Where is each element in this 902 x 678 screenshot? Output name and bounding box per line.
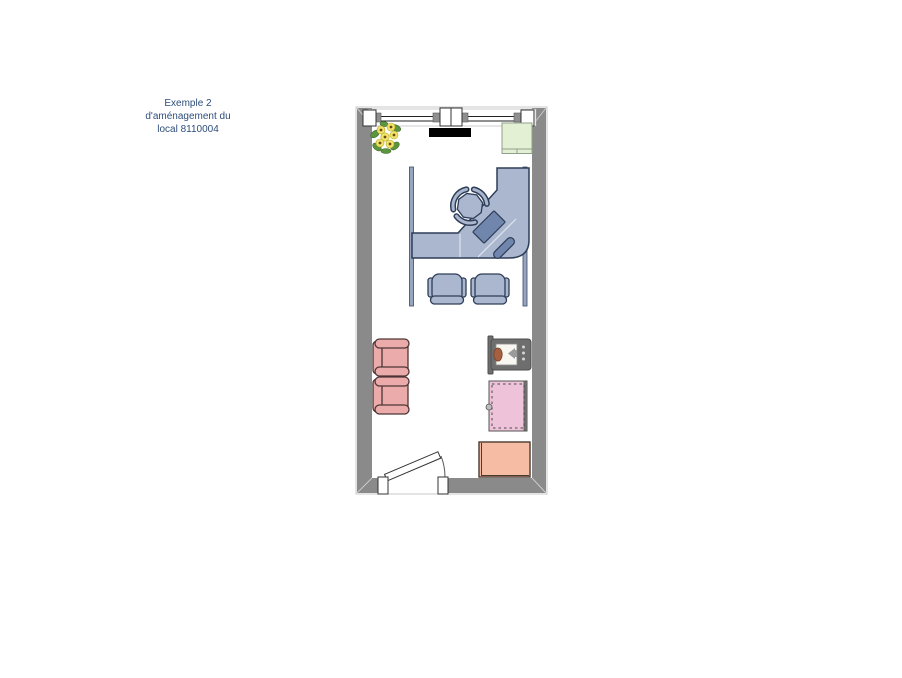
armchair-1-arm-bottom — [375, 367, 409, 376]
door-jamb-left — [378, 477, 388, 494]
floor-plan — [0, 0, 902, 678]
window-post-left — [363, 110, 376, 126]
window-connector-2 — [433, 113, 440, 122]
side-table-top — [479, 442, 530, 477]
floor-plan-page: Exemple 2 d'aménagement du local 8110004 — [0, 0, 902, 678]
visitor-chair-2-back — [474, 296, 507, 304]
pin-board-surface — [489, 381, 527, 431]
cabinet-door-left — [502, 149, 517, 154]
cabinet-body — [502, 123, 532, 149]
armchair-1-arm-top — [375, 339, 409, 348]
pin-board-rail — [524, 382, 528, 431]
pin-board-knob — [486, 404, 492, 410]
wall-display-strip — [429, 128, 471, 137]
armchair-2-arm-bottom — [375, 405, 409, 414]
visitor-chair-1 — [428, 274, 466, 304]
door-jamb-right — [438, 477, 448, 494]
pin-board — [486, 381, 527, 431]
armchair-2-seat — [379, 384, 408, 407]
armchair-1-seat — [379, 346, 408, 369]
cabinet-door-right — [517, 149, 532, 154]
door-opening — [388, 478, 438, 494]
tv-icon — [488, 336, 531, 374]
window-connector-4 — [514, 113, 521, 122]
visitor-chair-2 — [471, 274, 509, 304]
wall-left — [357, 108, 372, 493]
side-table — [479, 442, 530, 477]
tv-speaker — [494, 348, 502, 361]
window-post-middle-a — [440, 108, 451, 126]
armchair-2-arm-top — [375, 377, 409, 386]
armchair-1 — [373, 339, 409, 376]
armchair-2 — [373, 377, 409, 414]
visitor-chair-1-back — [431, 296, 464, 304]
cabinet — [502, 123, 532, 154]
wall-right — [532, 108, 546, 493]
window-post-middle-b — [451, 108, 462, 126]
